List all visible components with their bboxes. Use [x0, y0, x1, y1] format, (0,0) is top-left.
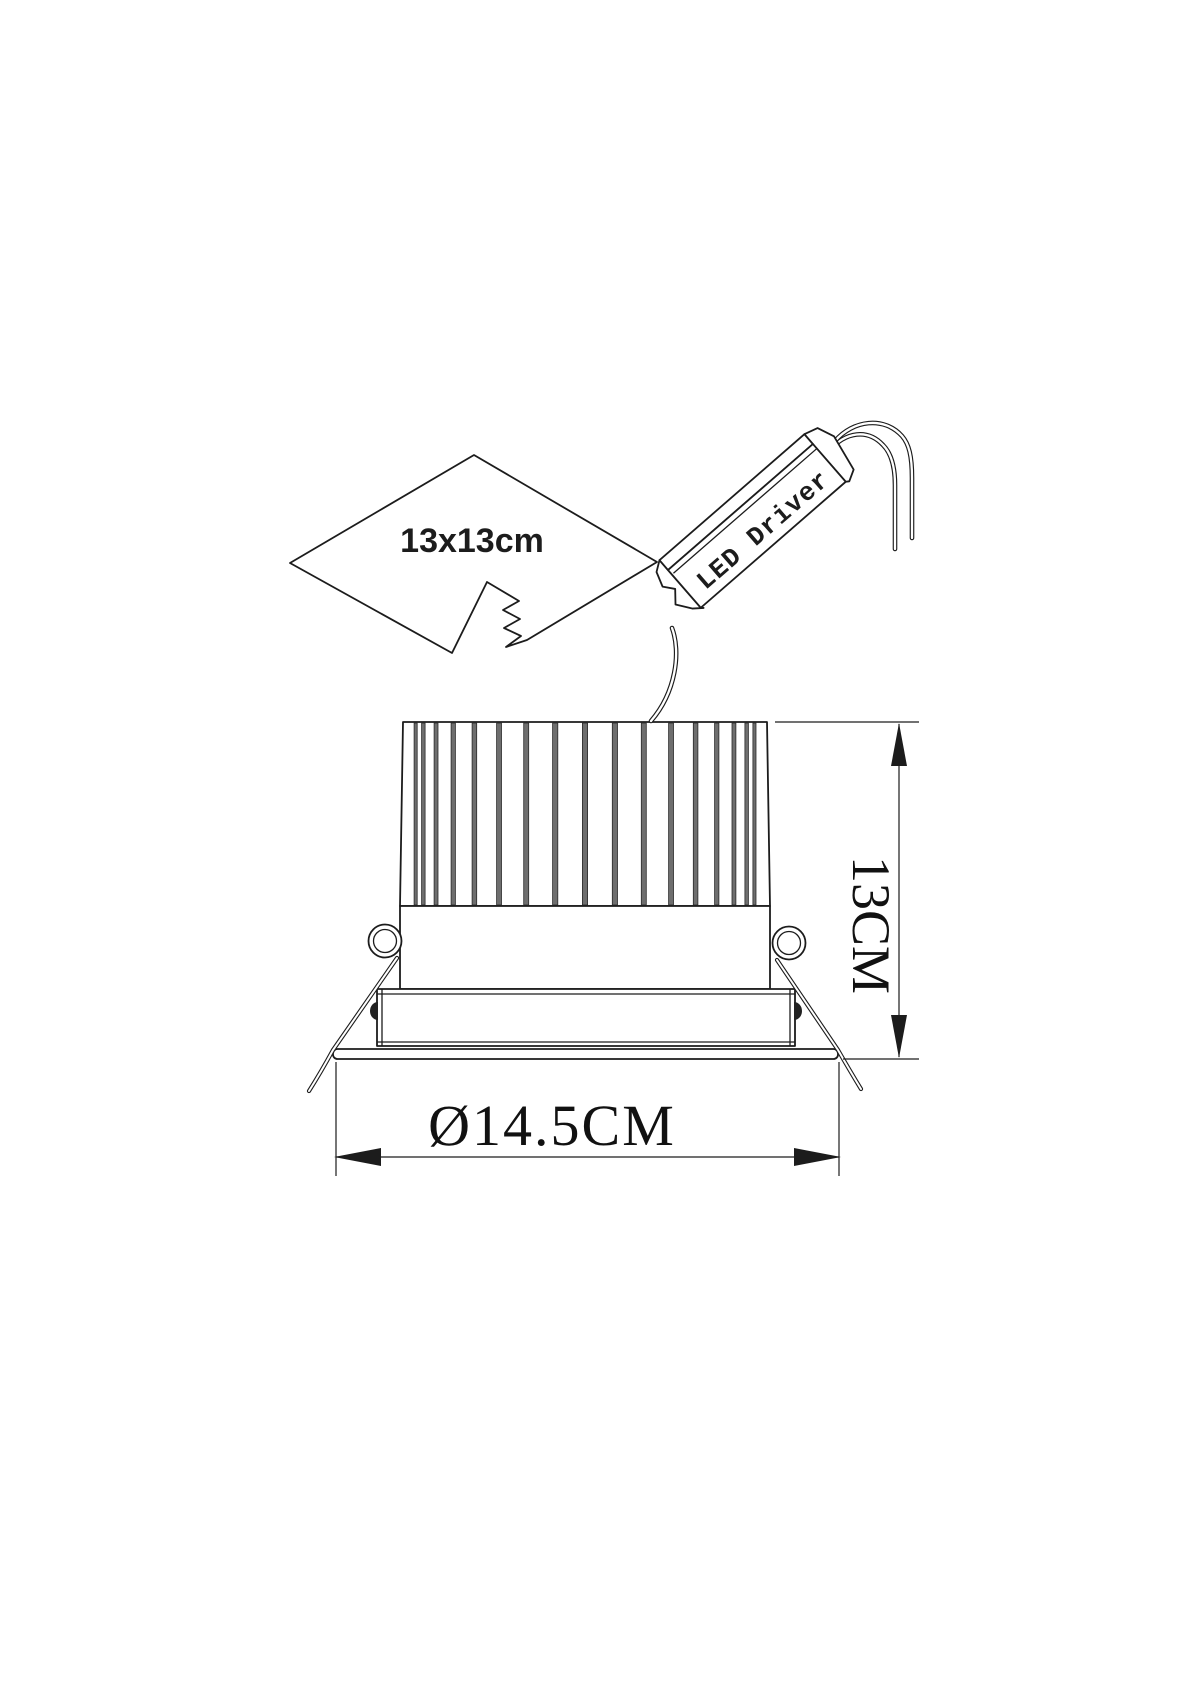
heatsink-fin	[553, 723, 558, 905]
cutout-size-label: 13x13cm	[400, 522, 544, 560]
heatsink-fin	[434, 723, 438, 905]
heatsink-base-band	[400, 906, 770, 989]
heatsink-fin	[693, 723, 698, 905]
heatsink-fin	[472, 723, 477, 905]
mid-housing-band	[377, 989, 795, 1046]
diameter-arrow-right	[794, 1148, 841, 1166]
heatsink-fin	[422, 723, 426, 905]
input-wire	[651, 628, 676, 721]
heatsink-fin	[732, 723, 736, 905]
heatsink-fin	[612, 723, 617, 905]
heatsink	[400, 722, 770, 906]
ceiling-cutout-panel: 13x13cm	[290, 455, 657, 653]
height-dimension-label: 13CM	[841, 856, 901, 994]
right-clip	[794, 1002, 802, 1020]
left-clip	[370, 1002, 378, 1020]
heatsink-fin	[582, 723, 587, 905]
diameter-dimension: Ø14.5CM	[334, 1062, 841, 1176]
drawing-svg: 13x13cm LED Driver	[0, 0, 1191, 1684]
heatsink-fin	[451, 723, 455, 905]
diameter-arrow-left	[334, 1148, 381, 1166]
height-arrow-up	[891, 723, 907, 766]
heatsink-fin	[641, 723, 646, 905]
driver-input-wire	[651, 628, 676, 721]
heatsink-fin	[524, 723, 529, 905]
height-arrow-down	[891, 1015, 907, 1058]
trim-flange	[333, 1049, 838, 1059]
heatsink-fin	[753, 723, 756, 905]
heatsink-fin	[497, 723, 502, 905]
led-driver: LED Driver	[647, 420, 863, 620]
downlight-technical-drawing: 13x13cm LED Driver	[0, 0, 1191, 1684]
heatsink-fin	[745, 723, 749, 905]
diameter-dimension-label: Ø14.5CM	[428, 1093, 676, 1158]
heatsink-fin	[414, 723, 417, 905]
heatsink-fin	[669, 723, 674, 905]
heatsink-fin	[715, 723, 719, 905]
fixture-housing	[333, 906, 838, 1059]
